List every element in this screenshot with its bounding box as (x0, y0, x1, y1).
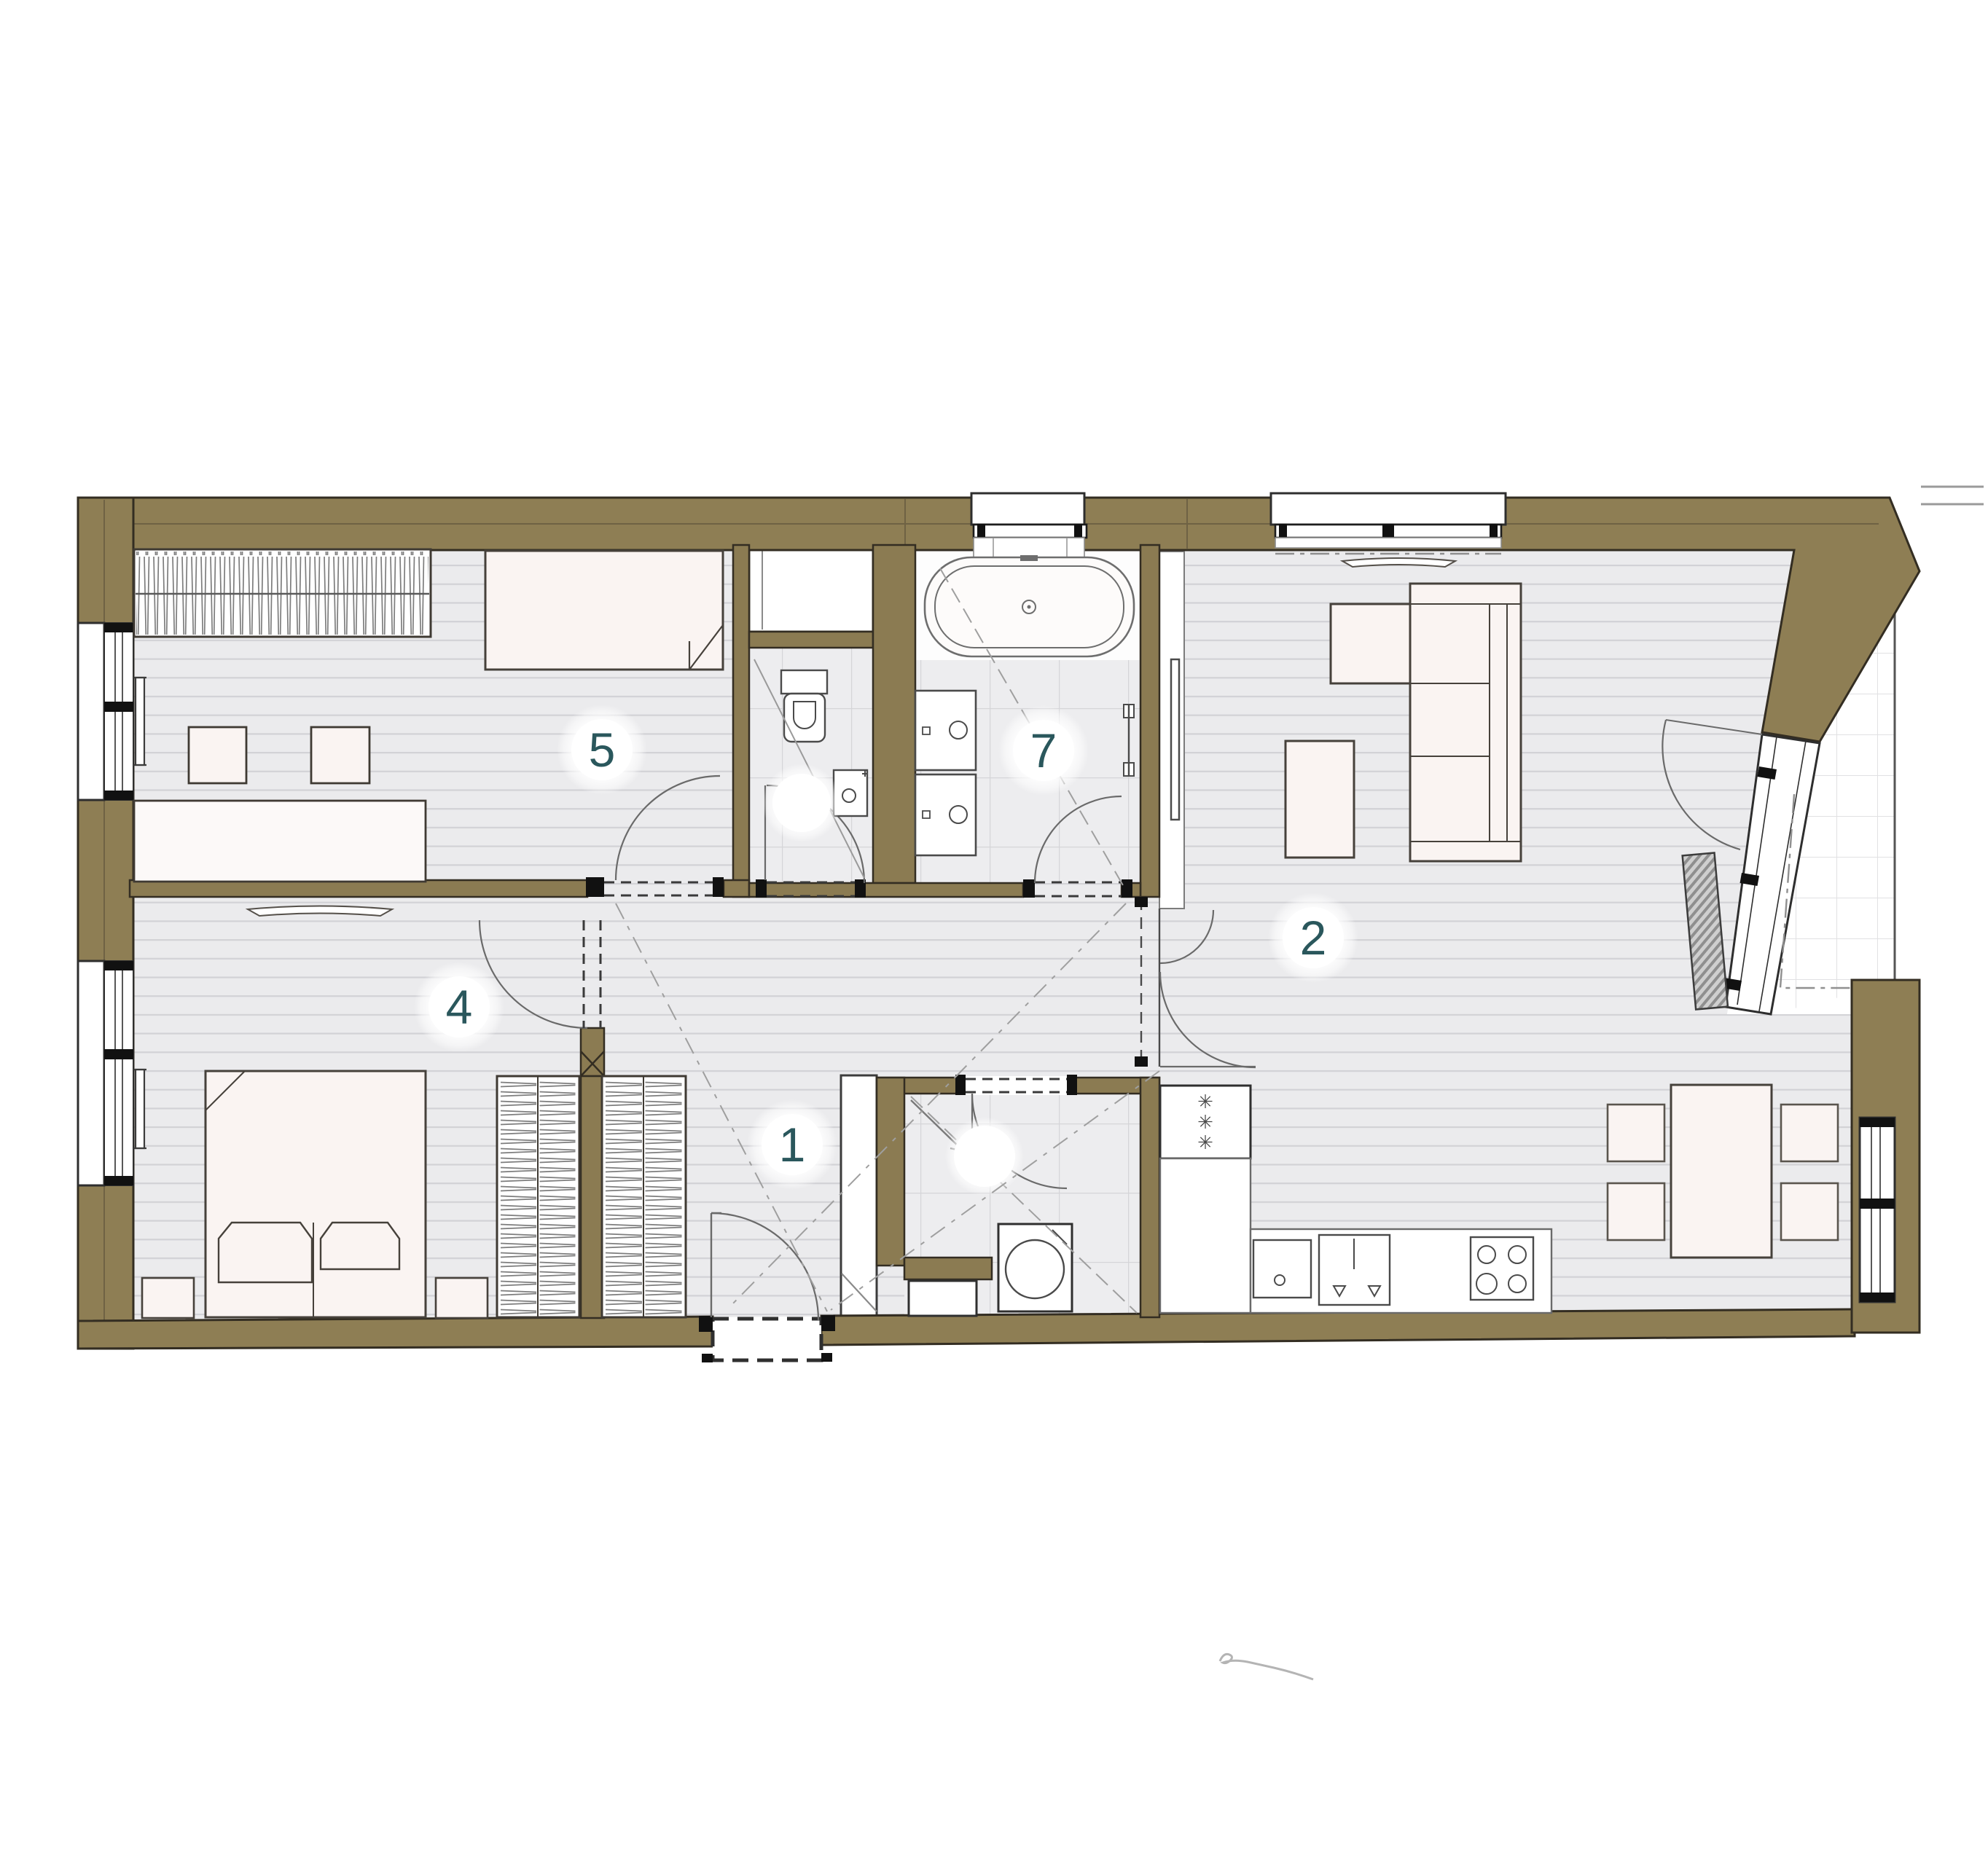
svg-text:1: 1 (779, 1118, 806, 1172)
svg-text:5: 5 (589, 723, 616, 777)
svg-text:✳: ✳ (1197, 1131, 1213, 1153)
svg-text:4: 4 (446, 980, 473, 1034)
svg-text:7: 7 (1030, 723, 1057, 777)
svg-text:✳: ✳ (1197, 1111, 1213, 1133)
svg-text:2: 2 (1300, 911, 1327, 965)
svg-text:✳: ✳ (1197, 1091, 1213, 1113)
